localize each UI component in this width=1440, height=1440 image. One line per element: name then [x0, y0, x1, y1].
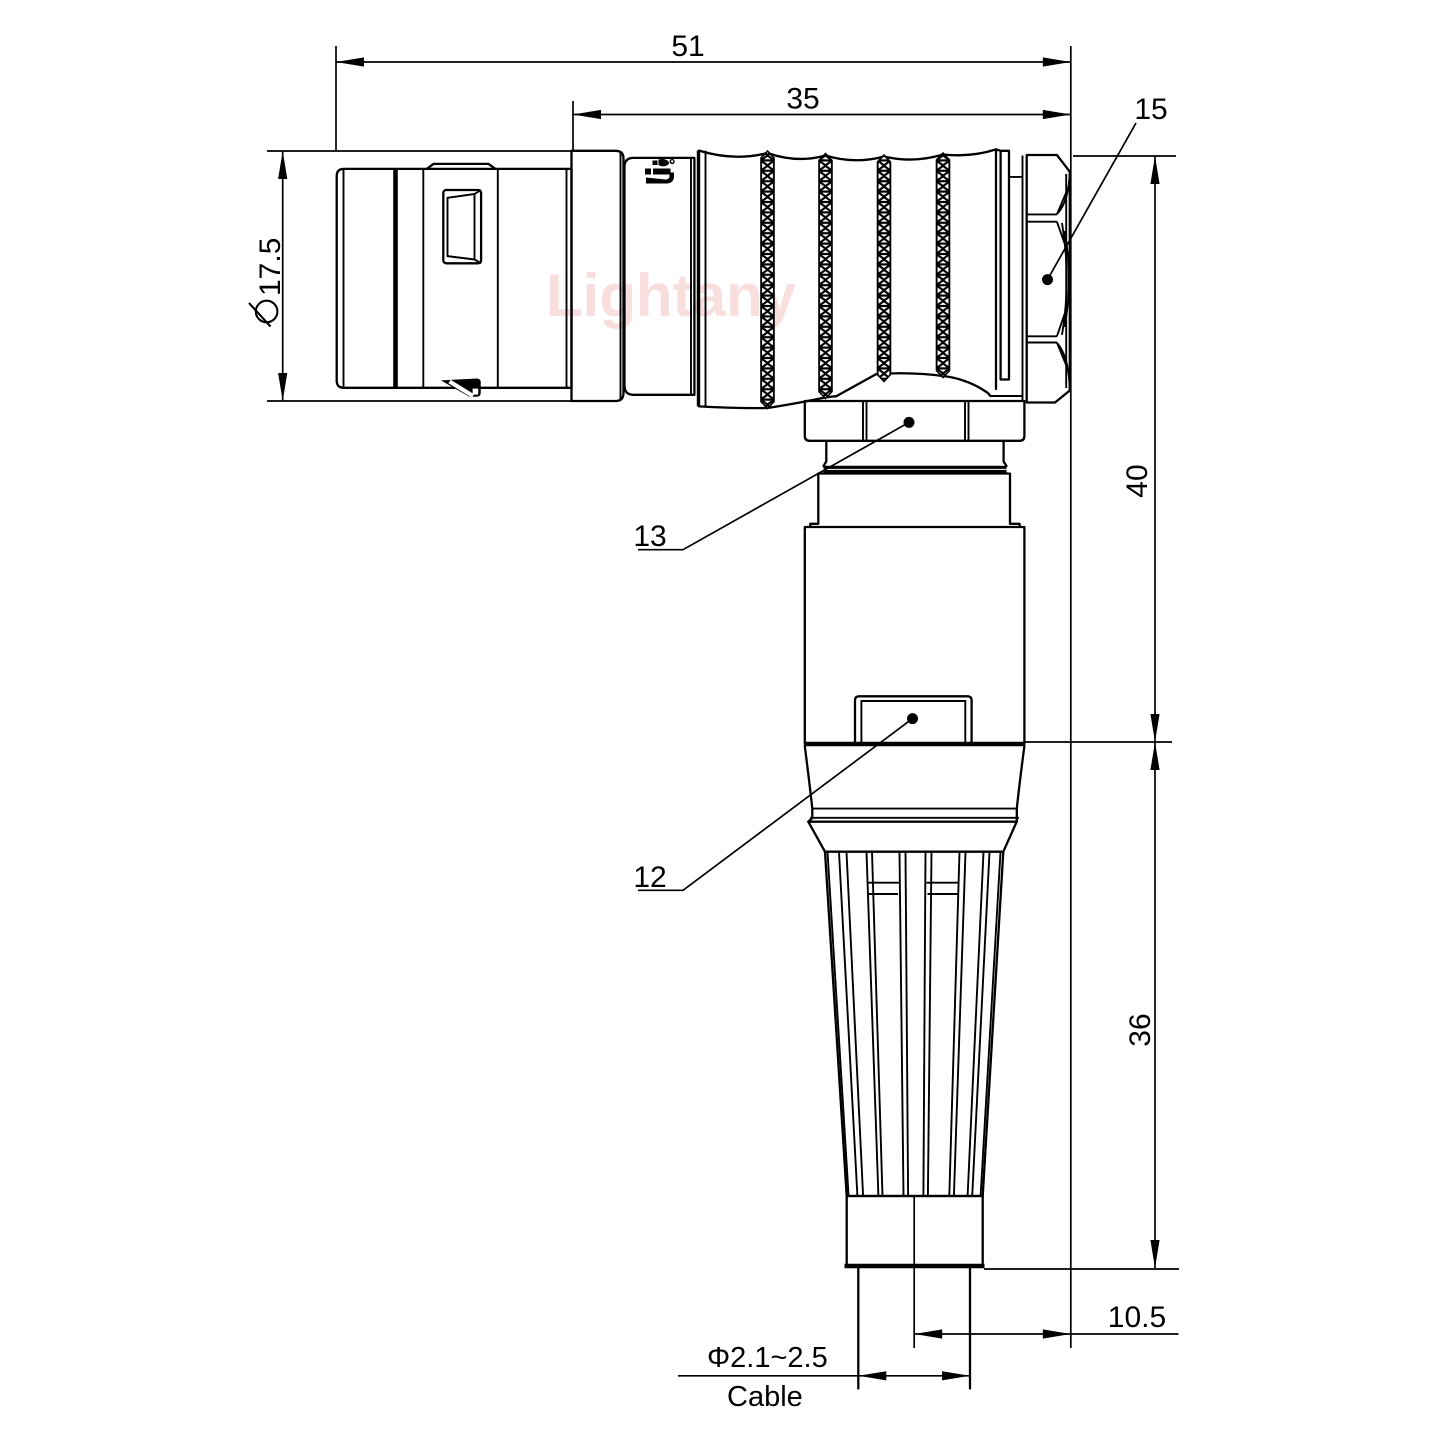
svg-text:40: 40 [1121, 464, 1154, 497]
svg-text:17.5: 17.5 [254, 238, 287, 296]
svg-text:12: 12 [633, 861, 666, 894]
svg-text:15: 15 [1134, 93, 1167, 126]
svg-text:51: 51 [671, 30, 704, 63]
svg-text:13: 13 [633, 520, 666, 553]
svg-text:35: 35 [786, 83, 819, 116]
svg-text:Lightany: Lightany [546, 262, 797, 329]
svg-text:10.5: 10.5 [1108, 1301, 1166, 1334]
svg-text:Cable: Cable [727, 1381, 803, 1413]
svg-text:36: 36 [1124, 1013, 1157, 1046]
svg-text:Φ2.1~2.5: Φ2.1~2.5 [707, 1342, 828, 1374]
